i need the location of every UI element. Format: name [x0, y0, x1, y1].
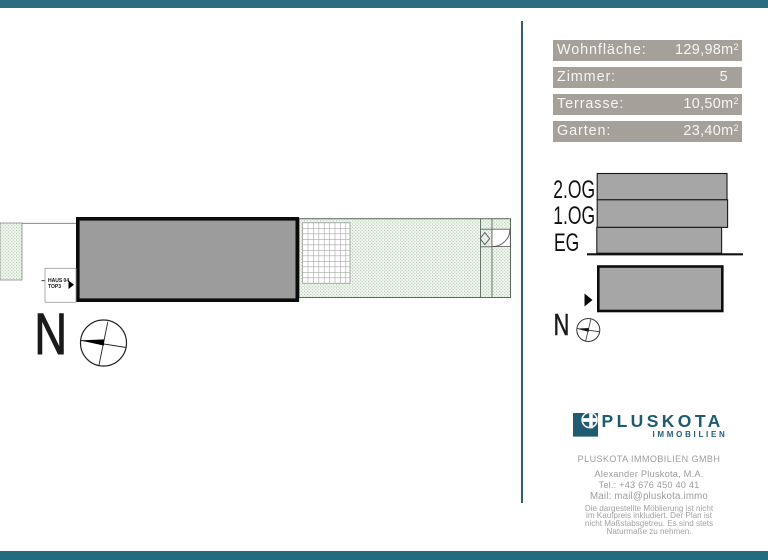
svg-text:N: N — [34, 303, 67, 368]
svg-text:N: N — [554, 307, 570, 342]
svg-text:2.OG: 2.OG — [553, 175, 595, 204]
svg-text:EG: EG — [554, 228, 579, 257]
svg-text:1.OG: 1.OG — [553, 201, 595, 230]
svg-text:TOP3: TOP3 — [48, 284, 61, 290]
